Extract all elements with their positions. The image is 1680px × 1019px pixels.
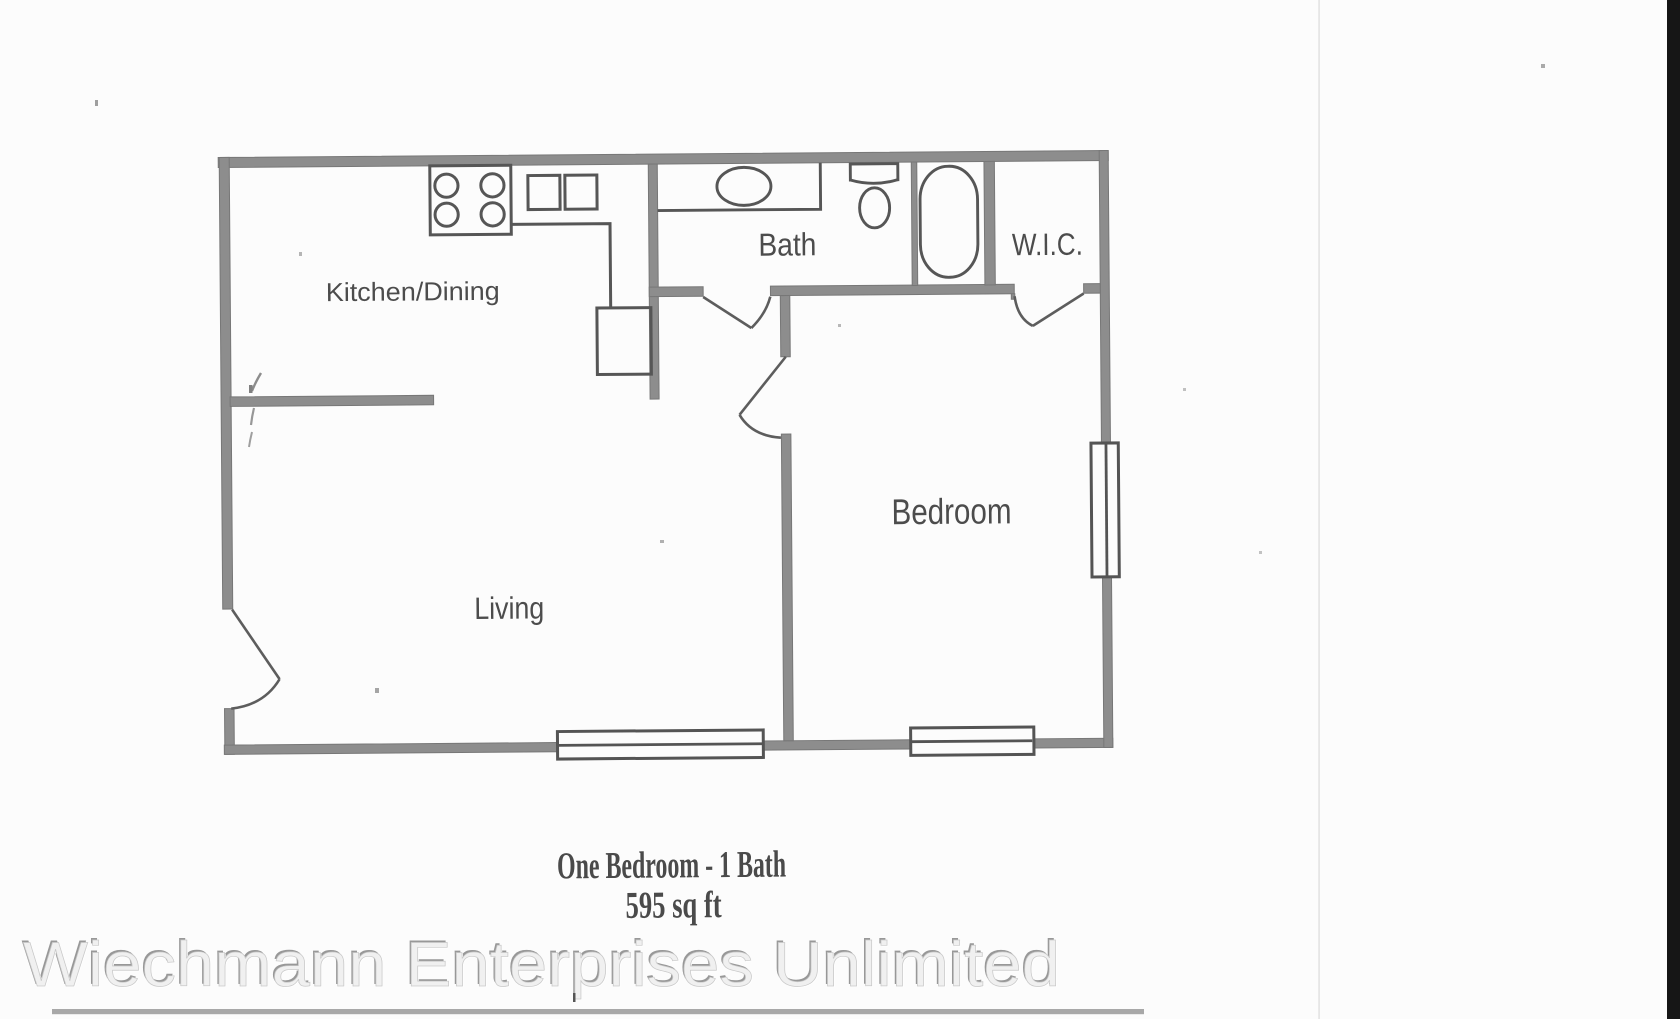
svg-text:W.I.C.: W.I.C.	[1012, 227, 1083, 263]
svg-text:Kitchen/Dining: Kitchen/Dining	[326, 276, 500, 307]
svg-text:One Bedroom - 1 Bath: One Bedroom - 1 Bath	[557, 844, 786, 888]
svg-text:Bath: Bath	[758, 226, 816, 262]
svg-text:Living: Living	[474, 590, 544, 626]
svg-text:Bedroom: Bedroom	[891, 490, 1011, 532]
svg-text:Wiechmann Enterprises Unlimite: Wiechmann Enterprises Unlimited	[23, 930, 1060, 1000]
svg-text:595 sq ft: 595 sq ft	[625, 884, 722, 927]
